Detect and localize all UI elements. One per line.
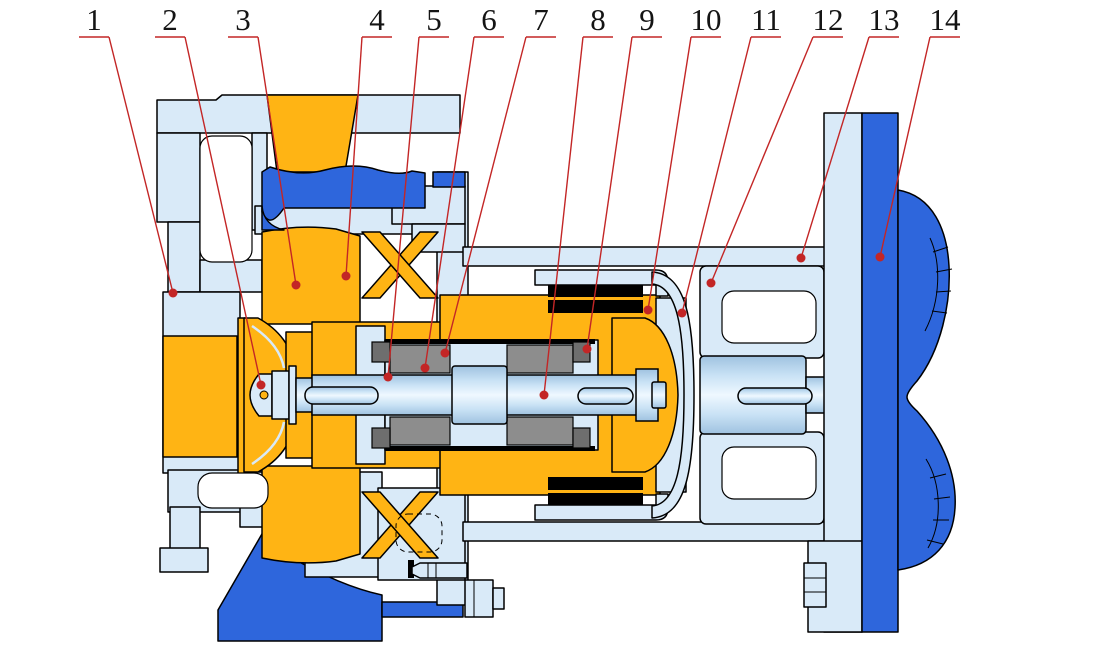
callout-number: 1 xyxy=(86,2,102,37)
leader-dot xyxy=(441,349,450,358)
suction-chamber-block xyxy=(163,336,237,457)
leader-dot xyxy=(292,281,301,290)
leader-line xyxy=(711,37,813,283)
sleeve-line-top xyxy=(385,339,595,344)
journal-bearing-bottom-right xyxy=(507,417,573,445)
callout-number: 7 xyxy=(533,2,549,37)
pump-sectional-drawing: 1234567891011121314 xyxy=(0,0,1100,650)
leader-dot xyxy=(421,364,430,373)
callout-number: 2 xyxy=(162,2,178,37)
shaft-center-collar xyxy=(452,366,507,424)
discharge-nozzle-passage xyxy=(267,95,358,172)
callout-number: 6 xyxy=(481,2,497,37)
hub-keyway xyxy=(738,388,812,404)
leader-dot xyxy=(797,254,806,263)
journal-bearing-top-left xyxy=(390,345,450,373)
nut-pin-hole xyxy=(260,391,268,399)
casing-left-wall-lower xyxy=(168,222,200,292)
volute-fluid-right xyxy=(433,172,465,187)
leader-dot xyxy=(583,345,592,354)
leader-line xyxy=(648,37,691,310)
casing-window-upper xyxy=(200,136,252,262)
bracket-arm-top xyxy=(463,247,825,266)
callout-number: 4 xyxy=(369,2,385,37)
callout-number: 10 xyxy=(691,2,722,37)
journal-bearing-top-right xyxy=(507,345,573,373)
bracket-foot-bolt xyxy=(804,563,826,607)
callout-number: 11 xyxy=(751,2,781,37)
bracket-arm-bottom xyxy=(463,522,825,541)
electric-motor xyxy=(862,113,955,632)
leader-dot xyxy=(678,309,687,318)
sleeve-line-bottom xyxy=(385,446,595,451)
leader-dot xyxy=(540,391,549,400)
leader-dot xyxy=(169,289,178,298)
shaft-end-spline xyxy=(652,382,666,408)
bracket-window-top xyxy=(722,291,816,343)
volute-lower-mass xyxy=(262,466,360,563)
bolt-hex-head xyxy=(465,580,493,617)
callout-number: 8 xyxy=(590,2,606,37)
impeller-nut-body xyxy=(272,371,289,419)
leader-dot xyxy=(257,381,266,390)
thrust-ring-bottom-right xyxy=(573,428,590,448)
impeller-nut-washer xyxy=(289,366,296,424)
pump-shaft-assembly xyxy=(250,366,666,424)
journal-bearing-bottom-left xyxy=(390,417,450,445)
casing-foot-flare xyxy=(160,548,208,572)
callout-number: 5 xyxy=(426,2,442,37)
bolt-shank xyxy=(412,563,467,578)
bracket-window-bottom xyxy=(722,447,816,499)
leader-dot xyxy=(707,279,716,288)
leader-dot xyxy=(876,253,885,262)
casing-window-lower xyxy=(198,473,268,508)
thrust-ring-bottom-left xyxy=(372,428,390,448)
keyway-front xyxy=(305,387,378,404)
callout-number: 9 xyxy=(639,2,655,37)
diagram-canvas: 1234567891011121314 xyxy=(0,0,1100,650)
motor-flange xyxy=(862,113,898,632)
leader-dot xyxy=(342,272,351,281)
callout-number: 14 xyxy=(930,2,962,37)
thrust-ring-top-left xyxy=(372,342,390,362)
outer-magnet-bottom xyxy=(548,493,643,506)
inner-magnet-bottom xyxy=(548,477,643,490)
callout-number: 12 xyxy=(813,2,844,37)
callout-number: 13 xyxy=(869,2,900,37)
callout-number: 3 xyxy=(235,2,251,37)
casing-left-wall-upper xyxy=(157,133,200,222)
bolt-tip xyxy=(493,588,504,609)
leader-dot xyxy=(644,306,653,315)
leader-dot xyxy=(384,373,393,382)
keyway-rear xyxy=(578,388,633,404)
inner-magnet-top xyxy=(548,300,643,313)
casing-under-window xyxy=(200,260,262,292)
